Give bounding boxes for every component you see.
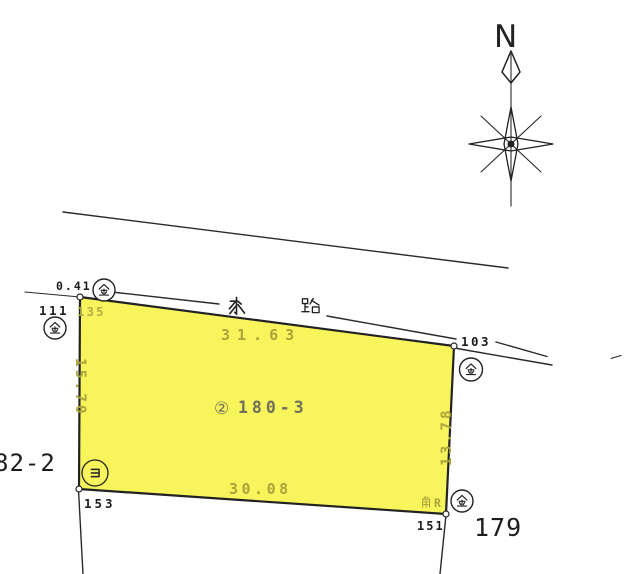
point-label-153: 153	[84, 496, 116, 511]
point-label-103: 103	[461, 334, 491, 349]
waterway-label-ro-icon	[302, 298, 319, 312]
corner-point-135	[77, 294, 83, 300]
adjacent-parcel-179: 179	[474, 513, 522, 542]
offset-dimension: 0.41	[56, 279, 92, 293]
survey-map: R 0.41 111 135 103 153 151 31.63 30.08 1…	[0, 0, 624, 574]
dimension-right: 13.78	[439, 407, 455, 466]
compass-north-label: N	[494, 19, 517, 55]
point-label-151: 151	[417, 519, 445, 533]
adjacent-parcel-82-2: 82-2	[0, 449, 56, 477]
upper-boundary-line	[63, 212, 508, 268]
south-boundary-extension-left	[79, 490, 84, 574]
right-edge-tick	[611, 356, 621, 359]
corner-radius-note: R	[434, 496, 441, 510]
metal-marker-top-right	[460, 358, 483, 381]
corner-point-151	[443, 511, 449, 517]
parcel-number-symbol: ②	[214, 399, 229, 419]
point-label-135: 135	[77, 304, 106, 319]
dimension-top: 31.63	[221, 326, 301, 344]
dimension-bottom: 30.08	[229, 480, 292, 498]
north-compass: N	[469, 19, 553, 206]
compass-center-dot	[508, 141, 515, 148]
corner-point-153	[76, 486, 82, 492]
metal-marker-top-left	[93, 279, 115, 301]
corner-point-103	[451, 343, 457, 349]
waterway-bank-segment-3	[496, 342, 547, 357]
metal-marker-point-111	[44, 317, 66, 339]
point-label-111: 111	[39, 303, 69, 318]
dimension-left: 15.70	[72, 358, 88, 417]
waterway-bank-segment-1	[116, 293, 219, 305]
waterway-label-mizu-icon	[229, 297, 244, 314]
metal-marker-bottom-right	[451, 490, 473, 512]
parcel-number: 180-3	[238, 398, 308, 417]
